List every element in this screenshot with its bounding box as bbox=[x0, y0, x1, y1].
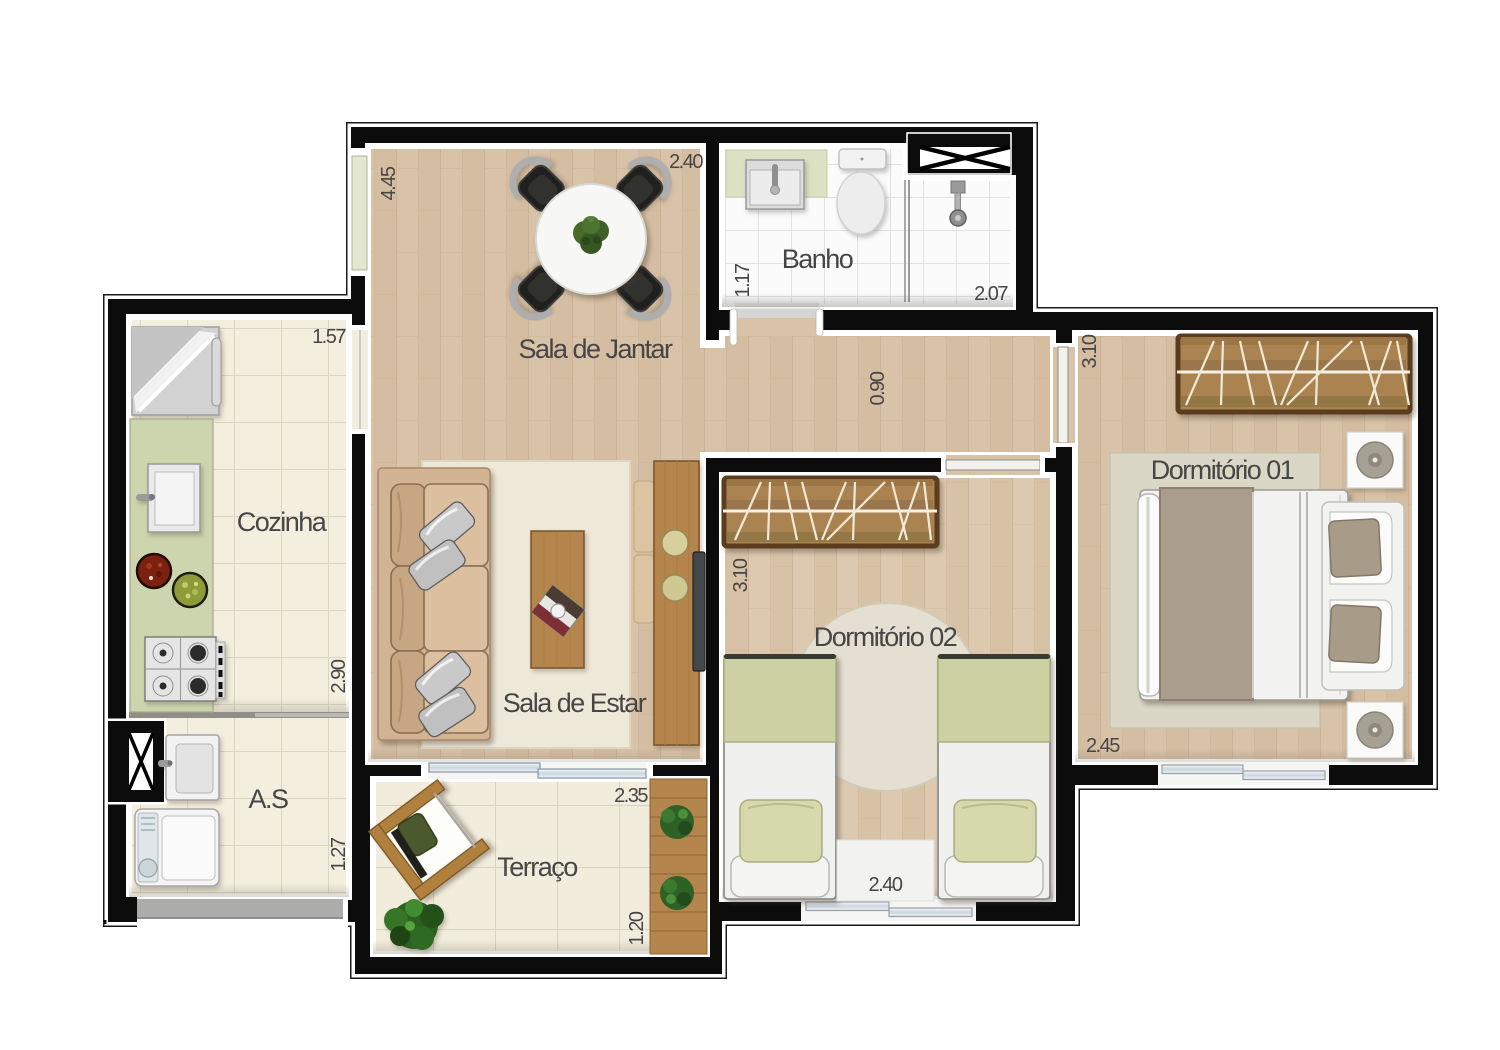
svg-text:0.90: 0.90 bbox=[867, 371, 889, 405]
svg-text:2.90: 2.90 bbox=[328, 659, 350, 693]
svg-text:4.45: 4.45 bbox=[378, 166, 400, 200]
svg-text:1.27: 1.27 bbox=[328, 837, 350, 871]
svg-text:3.10: 3.10 bbox=[730, 558, 752, 592]
svg-text:1.20: 1.20 bbox=[626, 911, 648, 945]
svg-text:Cozinha: Cozinha bbox=[237, 507, 328, 537]
svg-text:Sala de Jantar: Sala de Jantar bbox=[518, 334, 673, 364]
svg-text:2.40: 2.40 bbox=[669, 151, 703, 173]
svg-text:3.10: 3.10 bbox=[1079, 334, 1101, 368]
svg-text:1.17: 1.17 bbox=[732, 263, 754, 297]
svg-text:Dormitório 01: Dormitório 01 bbox=[1151, 455, 1294, 485]
svg-text:2.07: 2.07 bbox=[974, 283, 1008, 305]
svg-text:2.40: 2.40 bbox=[869, 874, 903, 896]
svg-text:2.45: 2.45 bbox=[1086, 735, 1120, 757]
svg-text:Banho: Banho bbox=[782, 244, 853, 274]
svg-text:Sala de Estar: Sala de Estar bbox=[503, 688, 647, 718]
svg-text:1.57: 1.57 bbox=[312, 326, 346, 348]
svg-text:A.S: A.S bbox=[248, 784, 288, 814]
svg-text:Dormitório 02: Dormitório 02 bbox=[814, 622, 957, 652]
svg-text:Terraço: Terraço bbox=[497, 852, 577, 882]
svg-text:2.35: 2.35 bbox=[614, 785, 648, 807]
